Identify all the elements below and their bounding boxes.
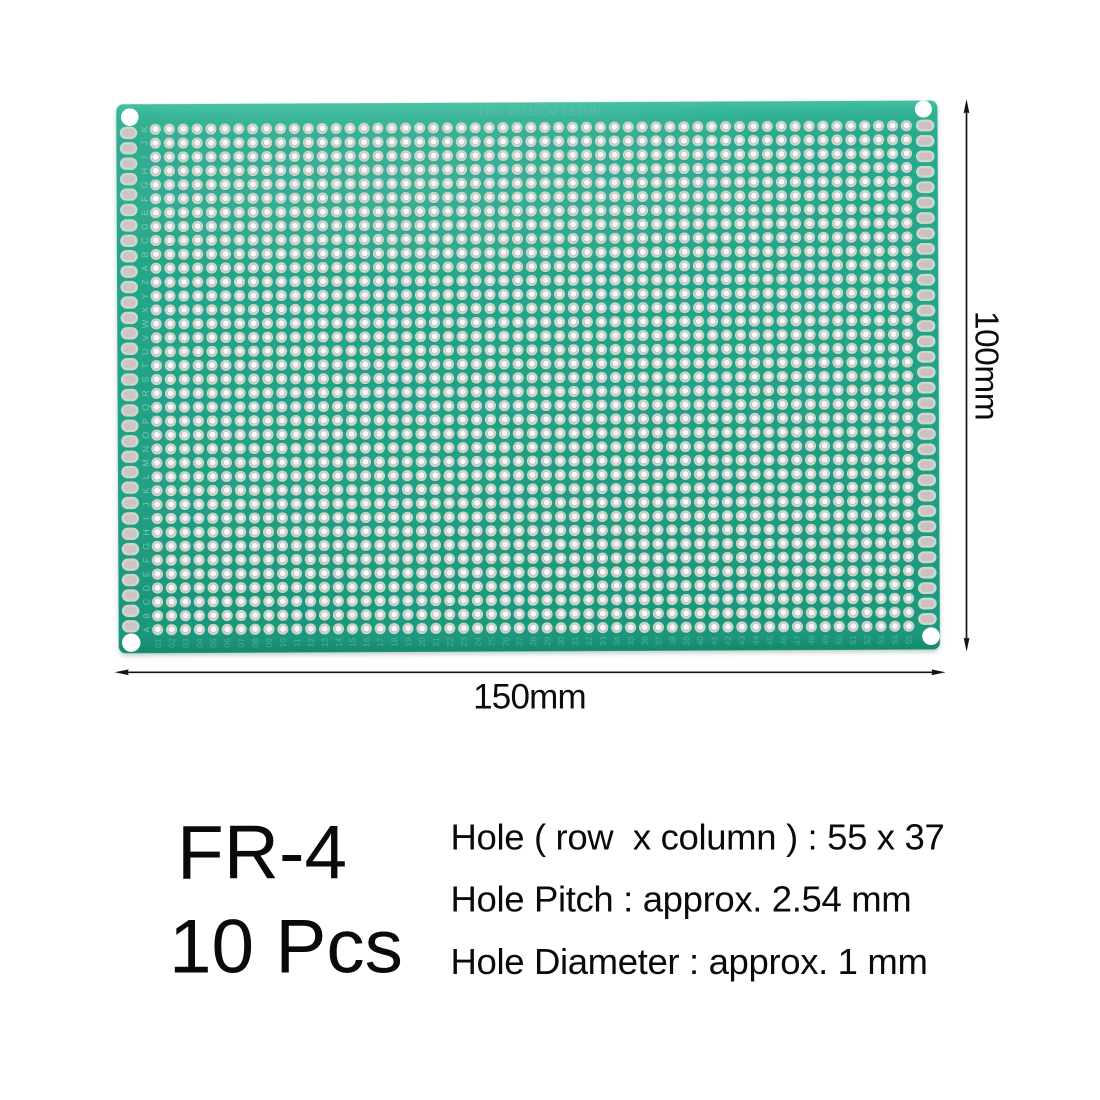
svg-text:36: 36 bbox=[640, 636, 650, 646]
svg-text:F: F bbox=[141, 557, 151, 563]
svg-text:06: 06 bbox=[222, 638, 232, 648]
svg-text:150mm: 150mm bbox=[473, 678, 586, 717]
svg-text:T: T bbox=[140, 362, 150, 368]
svg-text:20: 20 bbox=[417, 637, 427, 647]
svg-text:J: J bbox=[139, 141, 149, 146]
svg-text:Q: Q bbox=[141, 404, 151, 411]
svg-text:J: J bbox=[141, 502, 151, 507]
svg-text:16: 16 bbox=[361, 637, 371, 647]
svg-text:34: 34 bbox=[612, 636, 622, 646]
svg-text:15: 15 bbox=[347, 637, 357, 647]
svg-text:01: 01 bbox=[153, 638, 163, 648]
svg-text:L: L bbox=[141, 474, 151, 479]
svg-text:54: 54 bbox=[890, 635, 900, 645]
svg-text:48: 48 bbox=[806, 635, 816, 645]
svg-text:Hole ( row x column ) : 55 x: Hole ( row x column ) : 55 x 37 bbox=[451, 817, 945, 858]
svg-text:C: C bbox=[142, 598, 152, 605]
svg-text:W: W bbox=[140, 319, 150, 328]
svg-text:50: 50 bbox=[834, 635, 844, 645]
svg-text:X: X bbox=[140, 307, 150, 313]
svg-text:51: 51 bbox=[848, 635, 858, 645]
svg-text:09: 09 bbox=[264, 638, 274, 648]
svg-text:37: 37 bbox=[653, 636, 663, 646]
svg-text:I: I bbox=[141, 517, 151, 520]
svg-text:B: B bbox=[142, 613, 152, 619]
svg-text:04: 04 bbox=[194, 638, 204, 648]
svg-text:P: P bbox=[141, 418, 151, 424]
svg-text:FR-4 10X15CM 2.54MM: FR-4 10X15CM 2.54MM bbox=[479, 106, 602, 119]
svg-text:49: 49 bbox=[820, 635, 830, 645]
svg-text:41: 41 bbox=[709, 636, 719, 646]
svg-text:26: 26 bbox=[500, 637, 510, 647]
svg-text:Hole Pitch : approx. 2.54 mm: Hole Pitch : approx. 2.54 mm bbox=[451, 879, 912, 920]
svg-text:H: H bbox=[141, 529, 151, 536]
svg-text:52: 52 bbox=[862, 635, 872, 645]
svg-text:39: 39 bbox=[681, 636, 691, 646]
svg-text:M: M bbox=[141, 459, 151, 467]
svg-text:F: F bbox=[140, 196, 150, 202]
svg-text:19: 19 bbox=[403, 637, 413, 647]
svg-text:55: 55 bbox=[904, 635, 914, 645]
svg-text:U: U bbox=[140, 349, 150, 356]
svg-text:18: 18 bbox=[389, 637, 399, 647]
svg-text:14: 14 bbox=[334, 637, 344, 647]
svg-text:G: G bbox=[141, 543, 151, 550]
svg-text:31: 31 bbox=[570, 636, 580, 646]
svg-text:V: V bbox=[140, 335, 150, 341]
svg-text:Z: Z bbox=[140, 279, 150, 285]
svg-text:32: 32 bbox=[584, 636, 594, 646]
svg-text:29: 29 bbox=[542, 636, 552, 646]
svg-text:H: H bbox=[140, 168, 150, 175]
svg-text:D: D bbox=[141, 584, 151, 591]
svg-text:45: 45 bbox=[765, 635, 775, 645]
svg-text:40: 40 bbox=[695, 636, 705, 646]
svg-text:10: 10 bbox=[278, 638, 288, 648]
svg-text:N: N bbox=[141, 446, 151, 453]
svg-text:47: 47 bbox=[793, 635, 803, 645]
svg-text:D: D bbox=[140, 223, 150, 230]
svg-text:13: 13 bbox=[320, 637, 330, 647]
svg-text:07: 07 bbox=[236, 638, 246, 648]
svg-text:A: A bbox=[142, 627, 152, 633]
svg-text:O: O bbox=[141, 432, 151, 439]
svg-text:11: 11 bbox=[292, 638, 302, 647]
svg-text:C: C bbox=[140, 237, 150, 244]
svg-text:35: 35 bbox=[626, 636, 636, 646]
svg-text:17: 17 bbox=[375, 637, 385, 647]
svg-text:E: E bbox=[140, 210, 150, 216]
svg-text:42: 42 bbox=[723, 636, 733, 646]
svg-text:30: 30 bbox=[556, 636, 566, 646]
svg-text:G: G bbox=[140, 181, 150, 188]
svg-text:FR-4: FR-4 bbox=[177, 811, 347, 896]
svg-text:10 Pcs: 10 Pcs bbox=[169, 905, 403, 990]
svg-text:05: 05 bbox=[208, 638, 218, 648]
svg-text:46: 46 bbox=[779, 635, 789, 645]
svg-text:24: 24 bbox=[473, 637, 483, 647]
svg-text:100mm: 100mm bbox=[968, 311, 1005, 420]
svg-text:K: K bbox=[139, 126, 149, 132]
svg-text:53: 53 bbox=[876, 635, 886, 645]
svg-text:E: E bbox=[141, 571, 151, 577]
svg-text:38: 38 bbox=[667, 636, 677, 646]
svg-text:21: 21 bbox=[431, 637, 441, 647]
svg-text:03: 03 bbox=[181, 638, 191, 648]
svg-text:I: I bbox=[139, 156, 149, 159]
svg-text:R: R bbox=[141, 390, 151, 397]
svg-text:44: 44 bbox=[751, 635, 761, 645]
svg-text:08: 08 bbox=[250, 638, 260, 648]
svg-text:28: 28 bbox=[528, 636, 538, 646]
svg-text:12: 12 bbox=[306, 638, 316, 648]
svg-text:K: K bbox=[141, 488, 151, 494]
svg-text:33: 33 bbox=[598, 636, 608, 646]
svg-text:A: A bbox=[140, 265, 150, 271]
svg-text:S: S bbox=[140, 377, 150, 383]
svg-text:Y: Y bbox=[140, 293, 150, 299]
svg-text:27: 27 bbox=[514, 637, 524, 647]
svg-text:25: 25 bbox=[487, 637, 497, 647]
svg-text:B: B bbox=[140, 251, 150, 257]
svg-text:43: 43 bbox=[737, 635, 747, 645]
svg-text:02: 02 bbox=[167, 638, 177, 648]
svg-text:Hole Diameter : approx. 1 mm: Hole Diameter : approx. 1 mm bbox=[451, 941, 928, 982]
svg-text:23: 23 bbox=[459, 637, 469, 647]
svg-text:22: 22 bbox=[445, 637, 455, 647]
